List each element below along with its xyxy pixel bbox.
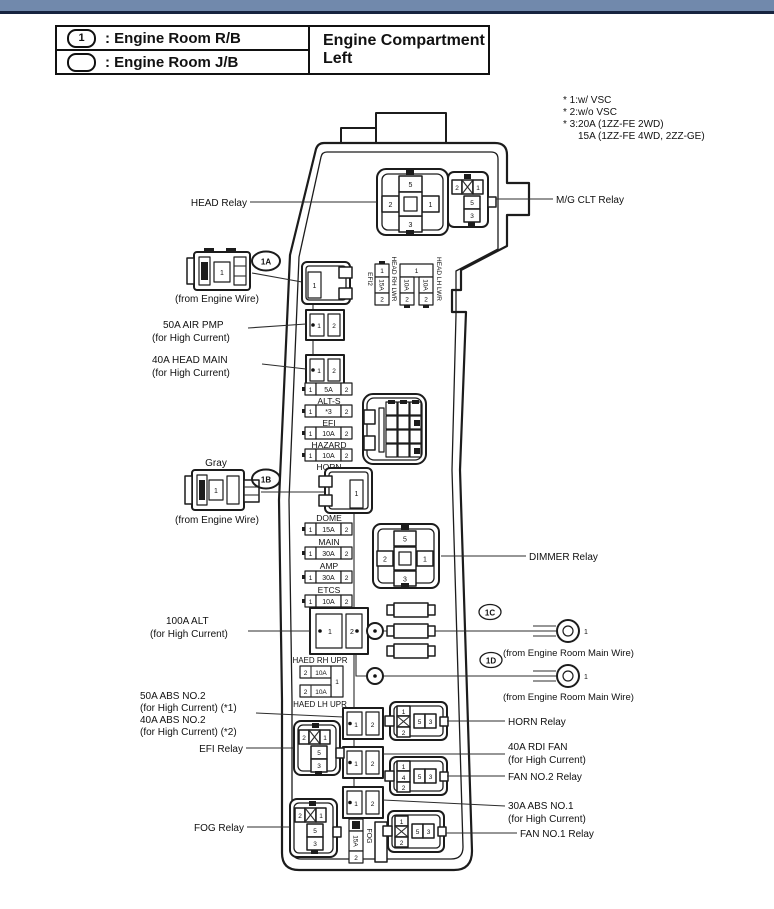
pin-number: 1 bbox=[402, 709, 406, 716]
pin-mark bbox=[468, 222, 475, 226]
pin-number: 1 bbox=[214, 488, 218, 495]
ring-pin: 1 bbox=[584, 629, 588, 636]
head-lh-lwr-label: HEAD LH LWR bbox=[435, 257, 442, 301]
ring-pin: 1 bbox=[584, 674, 588, 681]
pin-mark bbox=[414, 448, 420, 454]
abs2-fuse: 1 2 bbox=[343, 708, 383, 739]
pin-mark bbox=[406, 170, 414, 175]
note-line: * 3:20A (1ZZ-FE 2WD) bbox=[563, 119, 664, 130]
note-line: * 1:w/ VSC bbox=[563, 95, 611, 106]
pin-number: 3 bbox=[403, 577, 407, 584]
pin-mark bbox=[400, 400, 407, 404]
pin-number: 5 bbox=[317, 750, 321, 757]
pin-number: 1 bbox=[402, 764, 406, 771]
terminal-dot bbox=[318, 629, 322, 633]
pin-number: 2 bbox=[304, 689, 308, 696]
fuse-name: DOME bbox=[316, 513, 342, 523]
fog-relay: 2 1 5 3 bbox=[290, 799, 341, 857]
pin-number: 2 bbox=[332, 368, 336, 375]
pin-mark bbox=[312, 723, 319, 728]
pin-mark bbox=[406, 230, 414, 235]
horn-relay-label: HORN Relay bbox=[508, 717, 566, 728]
pin-number: 2 bbox=[402, 785, 406, 792]
connector-bar bbox=[379, 408, 384, 452]
multi-pin-connector bbox=[363, 394, 426, 464]
pin-number: 1 bbox=[309, 551, 313, 558]
fog-fuse-label: FOG bbox=[365, 828, 372, 843]
pin-number: 2 bbox=[405, 297, 409, 304]
fuse-amp: 10A bbox=[315, 689, 327, 696]
bolt-center bbox=[373, 674, 377, 678]
fuse-amp: 10A bbox=[322, 431, 335, 438]
pin-number: 2 bbox=[345, 551, 349, 558]
relay-tab bbox=[336, 748, 344, 758]
top-fuse-strip: EFI2 1 15A 2 HEAD RH LWR 1 10A 2 10A 2 H… bbox=[366, 256, 442, 308]
head-main-fuse: 1 2 bbox=[306, 355, 344, 385]
connector-lock bbox=[187, 258, 194, 284]
efi-relay-label: EFI Relay bbox=[199, 744, 243, 755]
rdi-fan-fuse: 1 2 bbox=[343, 747, 383, 778]
pin-socket bbox=[386, 444, 397, 457]
link-cap bbox=[387, 605, 394, 615]
box-top-tab-large bbox=[376, 113, 446, 143]
pin-number: 2 bbox=[345, 409, 349, 416]
pin-number: 3 bbox=[470, 213, 474, 220]
abs-no2-label-3: 40A ABS NO.2 bbox=[140, 715, 206, 726]
abs-no2-label-4: (for High Current) (*2) bbox=[140, 727, 237, 738]
pin-mark bbox=[412, 400, 419, 404]
relay-tab bbox=[438, 827, 446, 836]
head-main-label-2: (for High Current) bbox=[152, 368, 230, 379]
pin-number: 1 bbox=[335, 679, 339, 686]
note-line: * 2:w/o VSC bbox=[563, 107, 617, 118]
terminal-dot bbox=[348, 761, 352, 765]
pin-number: 2 bbox=[455, 185, 459, 192]
connector-bump bbox=[204, 248, 214, 252]
pin-mark bbox=[401, 525, 409, 530]
pin-number: 3 bbox=[429, 719, 433, 726]
pin-number: 2 bbox=[383, 557, 387, 564]
fuse-amp: 15A bbox=[322, 527, 335, 534]
link-body bbox=[394, 603, 428, 617]
fuse-box-diagram: * 1:w/ VSC * 2:w/o VSC * 3:20A (1ZZ-FE 2… bbox=[0, 0, 774, 909]
efi2-label: EFI2 bbox=[366, 272, 373, 286]
pin-number: 2 bbox=[402, 730, 406, 737]
mg-clt-relay-label: M/G CLT Relay bbox=[556, 195, 624, 206]
connector-detail bbox=[199, 480, 205, 500]
terminal-dot bbox=[311, 368, 315, 372]
bolt-center bbox=[373, 629, 377, 633]
pin-number: 1 bbox=[309, 453, 313, 460]
connector-tab bbox=[364, 410, 375, 424]
fuse-name: AMP bbox=[320, 561, 339, 571]
pin-number: 3 bbox=[313, 841, 317, 848]
pin-number: 1 bbox=[313, 283, 317, 290]
efi-relay: 2 1 5 3 bbox=[294, 721, 344, 775]
relay-center bbox=[394, 547, 416, 570]
pin-number: 1 bbox=[354, 722, 358, 729]
link-cap bbox=[387, 646, 394, 656]
pin-number: 1 bbox=[415, 268, 419, 275]
relay-tab bbox=[385, 716, 394, 726]
head-main-label-1: 40A HEAD MAIN bbox=[152, 355, 228, 366]
connector-lock bbox=[185, 476, 192, 504]
fog-fuse: 15A 2 FOG bbox=[349, 819, 387, 863]
pin-mark bbox=[401, 583, 409, 588]
pin-number: 1 bbox=[355, 491, 359, 498]
pin-number: 2 bbox=[345, 431, 349, 438]
pin-mark bbox=[315, 771, 322, 775]
relay-tab bbox=[440, 772, 448, 781]
pin-mark bbox=[404, 305, 410, 308]
pin-number: 5 bbox=[470, 200, 474, 207]
pin-number: 1 bbox=[309, 409, 313, 416]
pin-number: 1 bbox=[423, 557, 427, 564]
connector-detail bbox=[234, 257, 246, 285]
horn-relay: 1 2 5 3 bbox=[385, 702, 448, 740]
terminal-dot bbox=[311, 323, 315, 327]
pin-number: 1 bbox=[380, 268, 384, 275]
connector-bump bbox=[226, 248, 236, 252]
pin-number: 2 bbox=[354, 855, 358, 862]
pin-mark bbox=[352, 821, 360, 829]
pin-number: 1 bbox=[319, 813, 323, 820]
abs-no1-label-1: 30A ABS NO.1 bbox=[508, 801, 574, 812]
note-line: 15A (1ZZ-FE 4WD, 2ZZ-GE) bbox=[578, 131, 705, 142]
fuse-amp: 30A bbox=[322, 551, 335, 558]
pin-number: 1 bbox=[429, 202, 433, 209]
head-relay-label: HEAD Relay bbox=[191, 198, 247, 209]
pin-socket bbox=[410, 430, 421, 443]
pin-mark bbox=[464, 174, 471, 179]
fuse-amp: 10A bbox=[315, 670, 327, 677]
pin-number: 2 bbox=[304, 670, 308, 677]
ref-1a-label: 1A bbox=[261, 258, 271, 267]
pin-number: 2 bbox=[350, 629, 354, 636]
fusible-links bbox=[387, 603, 435, 658]
abs-no2-label-1: 50A ABS NO.2 bbox=[140, 691, 206, 702]
pin-mark bbox=[388, 400, 395, 404]
alt-label-2: (for High Current) bbox=[150, 629, 228, 640]
rdi-fan-label-2: (for High Current) bbox=[508, 755, 586, 766]
haed-upr-fuse-group: HAED RH UPR 2 10A 1 2 10A HAED LH UPR bbox=[292, 656, 347, 709]
relay-tab bbox=[488, 197, 496, 207]
connector-detail bbox=[201, 262, 208, 280]
link-cap bbox=[387, 626, 394, 636]
air-pmp-label-2: (for High Current) bbox=[152, 333, 230, 344]
link-cap bbox=[428, 605, 435, 615]
connector-mate bbox=[244, 480, 259, 502]
relay-tab bbox=[333, 827, 341, 837]
pin-number: 2 bbox=[400, 840, 404, 847]
fuse-amp: 10A bbox=[422, 279, 429, 291]
head-relay: 5 2 1 3 bbox=[377, 169, 448, 235]
pin-number: 3 bbox=[427, 829, 431, 836]
pin-number: 3 bbox=[317, 763, 321, 770]
terminal-dot bbox=[348, 801, 352, 805]
fuse-amp: 10A bbox=[322, 453, 335, 460]
pin-number: 5 bbox=[313, 828, 317, 835]
fuse-amp: 15A bbox=[378, 279, 385, 291]
fuse-amp: 10A bbox=[403, 279, 410, 291]
abs1-fuse: 1 2 bbox=[343, 787, 383, 818]
pin-number: 2 bbox=[371, 761, 375, 768]
pin-socket bbox=[398, 416, 409, 429]
footnotes: * 1:w/ VSC * 2:w/o VSC * 3:20A (1ZZ-FE 2… bbox=[563, 95, 705, 142]
link-body bbox=[394, 644, 428, 658]
fuse-column-a: 1 5A 2 ALT-S 1 *3 2 EFI 1 10A 2 HAZARD 1… bbox=[302, 383, 352, 472]
link-cap bbox=[428, 626, 435, 636]
pin-number: 1 bbox=[400, 819, 404, 826]
connector-notch bbox=[319, 476, 332, 487]
pin-number: 2 bbox=[380, 297, 384, 304]
pin-number: 5 bbox=[416, 829, 420, 836]
pin-number: 5 bbox=[418, 719, 422, 726]
pin-number: 2 bbox=[389, 202, 393, 209]
pin-number: 5 bbox=[418, 774, 422, 781]
pin-number: 1 bbox=[354, 801, 358, 808]
pin-mark bbox=[309, 801, 316, 806]
relay-tab bbox=[383, 826, 392, 836]
pin-number: 1 bbox=[317, 368, 321, 375]
fuse-name: ETCS bbox=[318, 585, 341, 595]
pin-number: 4 bbox=[402, 775, 406, 782]
ring-inner bbox=[563, 671, 573, 681]
link-cap bbox=[428, 646, 435, 656]
pin-number: 2 bbox=[371, 722, 375, 729]
leader-air-pmp bbox=[248, 324, 306, 328]
pin-number: 2 bbox=[424, 297, 428, 304]
pin-number: 2 bbox=[345, 387, 349, 394]
gray-label: Gray bbox=[205, 458, 227, 469]
pin-number: 2 bbox=[345, 599, 349, 606]
pin-number: 2 bbox=[345, 527, 349, 534]
pin-number: 2 bbox=[371, 801, 375, 808]
pin-number: 1 bbox=[309, 599, 313, 606]
relay-center bbox=[399, 192, 422, 216]
fan-no2-relay: 1 4 2 5 3 bbox=[385, 757, 448, 795]
pin-number: 1 bbox=[309, 387, 313, 394]
fuse-amp: 5A bbox=[324, 387, 333, 394]
alt-label-1: 100A ALT bbox=[166, 616, 209, 627]
terminal-dot bbox=[355, 629, 359, 633]
alt-fuse: 1 2 bbox=[310, 608, 368, 654]
pin-number: 1 bbox=[476, 185, 480, 192]
pin-number: 1 bbox=[220, 270, 224, 277]
fog-relay-label: FOG Relay bbox=[194, 823, 244, 834]
fuse-amp: 30A bbox=[322, 575, 335, 582]
ring-terminal-1d: 1D 1 (from Engine Room Main Wire) bbox=[480, 653, 634, 704]
fuse-cell bbox=[346, 614, 362, 648]
ref-1d-label: 1D bbox=[486, 657, 496, 666]
pin-mark bbox=[379, 261, 385, 264]
ring-inner bbox=[563, 626, 573, 636]
pin-number: 1 bbox=[309, 575, 313, 582]
leader-abs-no1 bbox=[383, 800, 505, 806]
pin-number: 2 bbox=[298, 813, 302, 820]
pin-number: 1 bbox=[309, 431, 313, 438]
pin-number: 5 bbox=[409, 182, 413, 189]
connector-tab bbox=[364, 436, 375, 450]
connector-notch bbox=[339, 267, 352, 278]
pin-number: 3 bbox=[409, 222, 413, 229]
pin-number: 1 bbox=[323, 735, 327, 742]
ring-terminal-1c: 1C 1 (from Engine Room Main Wire) bbox=[479, 605, 634, 660]
fan-no2-relay-label: FAN NO.2 Relay bbox=[508, 772, 582, 783]
from-engine-wire-a-label: (from Engine Wire) bbox=[175, 294, 259, 305]
leader-abs-no2 bbox=[256, 713, 343, 717]
haed-rh-upr-label: HAED RH UPR bbox=[292, 656, 347, 665]
engine-wire-connector-a: 1 bbox=[187, 248, 250, 290]
ref-1b-label: 1B bbox=[261, 476, 271, 485]
fan-no1-relay: 1 2 5 3 bbox=[383, 811, 446, 852]
pin-mark bbox=[423, 305, 429, 308]
pin-number: 2 bbox=[345, 453, 349, 460]
fuse-amp: 15A bbox=[352, 835, 359, 847]
box-connector-1a: 1 bbox=[302, 262, 352, 304]
pin-number: 5 bbox=[403, 537, 407, 544]
connector-detail bbox=[227, 476, 239, 504]
fuse-amp: 10A bbox=[322, 599, 335, 606]
air-pmp-fuse: 1 2 bbox=[306, 310, 344, 340]
rdi-fan-label-1: 40A RDI FAN bbox=[508, 742, 567, 753]
abs-no2-label-2: (for High Current) (*1) bbox=[140, 703, 237, 714]
terminal-dot bbox=[348, 722, 352, 726]
fuse-name: MAIN bbox=[318, 537, 339, 547]
haed-lh-upr-label: HAED LH UPR bbox=[293, 700, 347, 709]
pin-socket bbox=[398, 444, 409, 457]
pin-mark bbox=[311, 850, 318, 854]
abs-no1-label-2: (for High Current) bbox=[508, 814, 586, 825]
pin-number: 1 bbox=[309, 527, 313, 534]
pin-number: 1 bbox=[354, 761, 358, 768]
dimmer-relay-label: DIMMER Relay bbox=[529, 552, 598, 563]
head-rh-lwr-label: HEAD RH LWR bbox=[390, 256, 397, 301]
box-top-tab-small bbox=[341, 128, 376, 143]
engine-wire-connector-b: 1 bbox=[185, 470, 259, 510]
box-connector-1b: 1 bbox=[319, 468, 372, 513]
connector-notch bbox=[319, 495, 332, 506]
pin-socket bbox=[398, 430, 409, 443]
ref-1c-label: 1C bbox=[485, 609, 495, 618]
fan-no1-relay-label: FAN NO.1 Relay bbox=[520, 829, 594, 840]
connector-notch bbox=[339, 288, 352, 299]
pin-socket bbox=[386, 430, 397, 443]
from-main-wire-d-label: (from Engine Room Main Wire) bbox=[503, 692, 634, 703]
pin-number: 3 bbox=[429, 774, 433, 781]
mg-clt-relay: 2 1 5 3 bbox=[448, 172, 496, 227]
from-engine-wire-b-label: (from Engine Wire) bbox=[175, 515, 259, 526]
from-main-wire-c-label: (from Engine Room Main Wire) bbox=[503, 648, 634, 659]
pin-number: 1 bbox=[328, 629, 332, 636]
relay-tab bbox=[440, 717, 448, 726]
pin-socket bbox=[386, 416, 397, 429]
air-pmp-label-1: 50A AIR PMP bbox=[163, 320, 224, 331]
fuse-amp: *3 bbox=[325, 409, 332, 416]
abs-no2-callout: 50A ABS NO.2 (for High Current) (*1) 40A… bbox=[140, 691, 237, 738]
dimmer-relay: 5 2 1 3 bbox=[373, 524, 439, 588]
leader-engine-wire-a bbox=[252, 273, 302, 282]
pin-number: 2 bbox=[332, 323, 336, 330]
pin-number: 1 bbox=[317, 323, 321, 330]
pin-number: 2 bbox=[345, 575, 349, 582]
relay-tab bbox=[385, 771, 394, 781]
fuse-column-b: DOME 1 15A 2 MAIN 1 30A 2 AMP 1 30A 2 ET… bbox=[302, 513, 352, 607]
link-body bbox=[394, 624, 428, 638]
pin-mark bbox=[414, 420, 420, 426]
pin-number: 2 bbox=[302, 735, 306, 742]
